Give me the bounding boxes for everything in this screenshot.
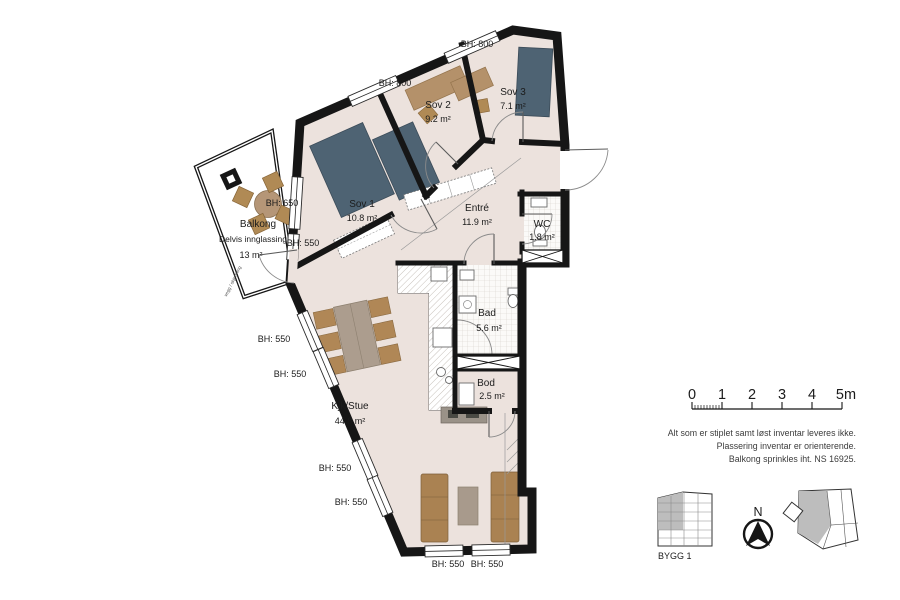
bh-label: BH: 550 — [335, 497, 368, 507]
room-area-bod: 2.5 m² — [479, 391, 505, 401]
dining-chair — [368, 297, 391, 318]
sofa-left — [421, 474, 448, 542]
wc-sink — [531, 198, 547, 207]
kitchen-sink — [446, 377, 453, 384]
scale-bar: 0 1 2 3 4 5m — [688, 387, 856, 409]
room-area-kjkstue: 44.8 m² — [335, 416, 366, 426]
room-sub-balkong: Delvis innglassing — [219, 234, 287, 244]
room-area-sov2: 9.2 m² — [425, 114, 451, 124]
note-line: Alt som er stiplet samt løst inventar le… — [668, 428, 856, 438]
window — [472, 544, 510, 556]
building-key-label: BYGG 1 — [658, 551, 692, 561]
room-label-sov2: Sov 2 — [425, 100, 451, 111]
bh-label: BH: 550 — [432, 559, 465, 569]
bad-sink — [460, 270, 474, 280]
room-label-bad: Bad — [478, 308, 496, 319]
floorplan-canvas: vegg / skjerming — [0, 0, 900, 600]
room-label-sov1: Sov 1 — [349, 199, 375, 210]
bod-item — [459, 383, 474, 405]
bh-label: BH: 550 — [287, 238, 320, 248]
washer — [459, 296, 476, 313]
room-area-sov3: 7.1 m² — [500, 101, 526, 111]
room-label-entre: Entré — [465, 203, 489, 214]
room-label-bod: Bod — [477, 378, 495, 389]
bh-label: BH: 550 — [274, 369, 307, 379]
entrance-opening — [560, 151, 570, 189]
balcony: vegg / skjerming — [196, 131, 295, 297]
room-area-balkong: 13 m² — [239, 250, 262, 260]
coffee-table — [458, 487, 478, 525]
dining-chair — [313, 308, 336, 329]
room-area-bad: 5.6 m² — [476, 323, 502, 333]
scale-tick-2: 2 — [748, 387, 756, 403]
scale-tick-0: 0 — [688, 387, 696, 403]
dining-chair — [378, 344, 401, 365]
scale-tick-5: 5m — [836, 387, 856, 403]
bh-label: BH: 800 — [379, 78, 412, 88]
notes: Alt som er stiplet samt løst inventar le… — [668, 428, 856, 464]
note-line: Balkong sprinkles iht. NS 16925. — [729, 454, 856, 464]
scale-tick-1: 1 — [718, 387, 726, 403]
building-key: BYGG 1 — [658, 492, 712, 561]
bh-label: BH: 650 — [266, 198, 299, 208]
scale-tick-4: 4 — [808, 387, 816, 403]
kitchen-oven — [433, 328, 452, 347]
bh-label: BH: 550 — [319, 463, 352, 473]
room-label-kjkstue: Kjk/Stue — [331, 401, 369, 412]
room-area-sov1: 10.8 m² — [347, 213, 378, 223]
window — [425, 545, 463, 557]
kitchen-appliance — [431, 267, 447, 281]
dining-chair — [373, 320, 396, 341]
room-label-wc: WC — [534, 219, 551, 230]
room-area-wc: 1.8 m² — [529, 232, 555, 242]
bh-label: BH: 550 — [471, 559, 504, 569]
shaft — [522, 250, 563, 263]
room-label-balkong: Balkong — [240, 219, 276, 230]
room-label-sov3: Sov 3 — [500, 87, 526, 98]
note-line: Plassering inventar er orienterende. — [717, 441, 856, 451]
north-label: N — [753, 505, 762, 519]
bh-label: BH: 800 — [461, 39, 494, 49]
site-plan — [783, 489, 858, 549]
bh-label: BH: 550 — [258, 334, 291, 344]
north-arrow: N — [744, 505, 772, 548]
room-area-entre: 11.9 m² — [462, 217, 492, 227]
scale-tick-3: 3 — [778, 387, 786, 403]
bad-toilet — [508, 288, 518, 308]
shaft — [457, 356, 520, 369]
kitchen-sink — [437, 368, 446, 377]
